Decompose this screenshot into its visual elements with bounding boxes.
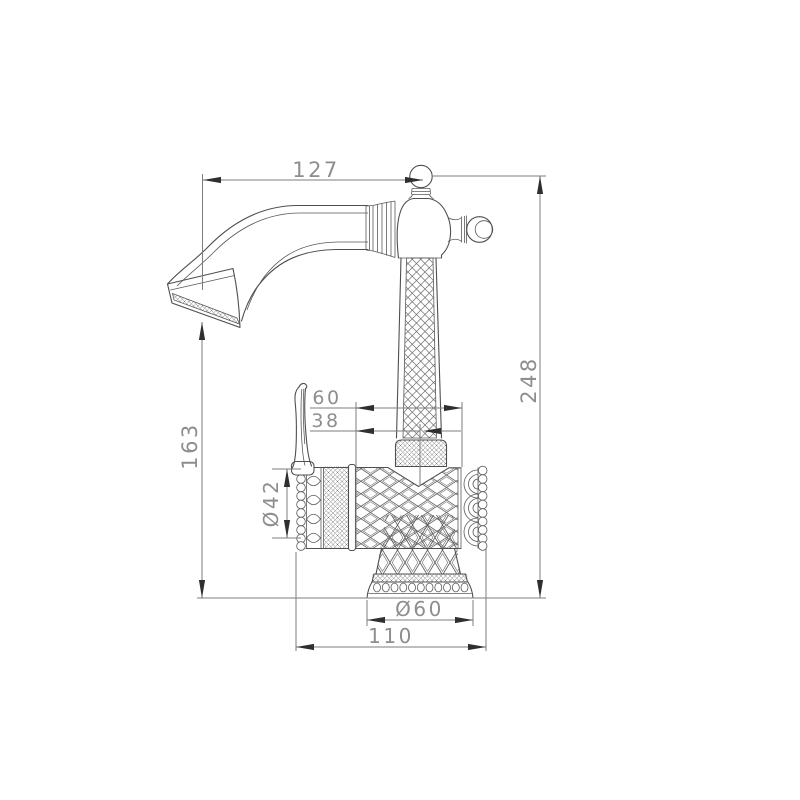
top-knob-ball [410,165,432,187]
dimension-body-diameter: Ø42 [259,469,301,538]
dim-label-127: 127 [292,158,340,182]
spout-outlet-head [168,269,241,328]
dim-label-d42: Ø42 [259,479,283,528]
technical-drawing-canvas: 127 248 163 60 [0,0,800,800]
dim-label-110: 110 [368,624,414,648]
right-bead-column [478,466,487,550]
dimension-base-diameter: Ø60 [367,597,473,626]
faucet-figure [168,165,493,598]
main-body [297,465,487,575]
side-handle-ball [467,217,493,243]
dim-label-163: 163 [178,422,202,470]
swivel-ring [349,465,356,551]
aerator-band [173,294,240,325]
top-knob [409,165,434,198]
dim-label-60: 60 [312,387,341,409]
neck-column [397,258,442,438]
right-arc-ornament [464,470,478,546]
dim-label-d60: Ø60 [395,597,444,621]
dimension-overall-height: 248 [517,176,543,598]
dimension-outlet-height: 163 [178,322,205,598]
left-petal-ornament [307,476,321,542]
faucet-dimension-drawing: 127 248 163 60 [0,0,800,800]
dim-label-38: 38 [311,410,340,432]
dim-label-248: 248 [517,356,541,404]
head-body [397,199,450,259]
spout-connector-ribs [366,201,395,258]
knurled-collar [396,440,447,467]
side-handle [448,216,493,244]
riser-lattice [376,515,461,574]
dimension-spout-reach: 127 [203,158,547,290]
